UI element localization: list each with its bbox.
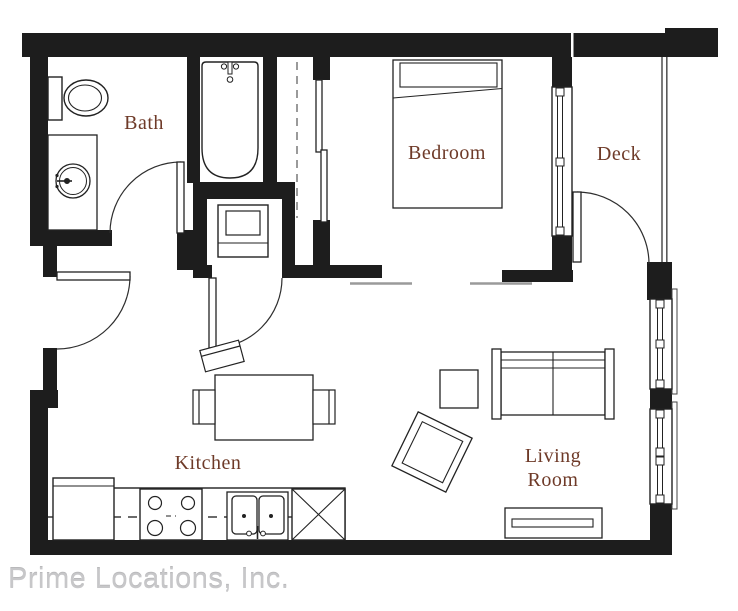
dining-table [215,375,313,440]
dining-chair-left [193,390,215,424]
dining-chair-top [200,340,244,372]
kitchen-label: Kitchen [175,452,242,474]
stove [140,489,202,540]
dishwasher [292,489,345,540]
window-outer-sills [672,289,677,509]
deck-door [573,192,649,264]
svg-text:Room: Room [528,469,579,491]
living-room-label: Living Room [525,445,581,491]
armchair [392,412,472,492]
living-room-window-2 [650,409,672,504]
bathtub [202,62,258,178]
laundry-closet-door [209,278,282,348]
bath-door [110,162,184,233]
kitchen-sink [227,492,288,540]
top-wall-seam [571,33,574,57]
bed [393,60,502,208]
toilet [48,77,108,120]
dining-chair-right [313,390,335,424]
bedroom-deck-window [552,87,572,236]
sofa [492,349,614,419]
refrigerator [53,478,114,540]
bath-label: Bath [124,112,164,134]
entry-door [57,272,130,349]
floorplan-drawing: Bath Bedroom Deck Kitchen Living Room [0,0,738,611]
deck-railing [662,57,667,262]
living-room-window-1 [650,299,672,389]
deck-label: Deck [597,143,641,165]
washer-dryer [218,205,268,257]
walls [22,28,718,555]
bathroom-sink [48,135,97,230]
floorplan-page: Bath Bedroom Deck Kitchen Living Room Pr… [0,0,738,611]
tv-console [505,508,602,538]
sliding-closet-door [316,80,327,222]
side-table [440,370,478,408]
svg-text:Living: Living [525,445,581,467]
bedroom-label: Bedroom [408,142,486,164]
company-name-watermark: Prime Locations, Inc. [8,563,289,596]
